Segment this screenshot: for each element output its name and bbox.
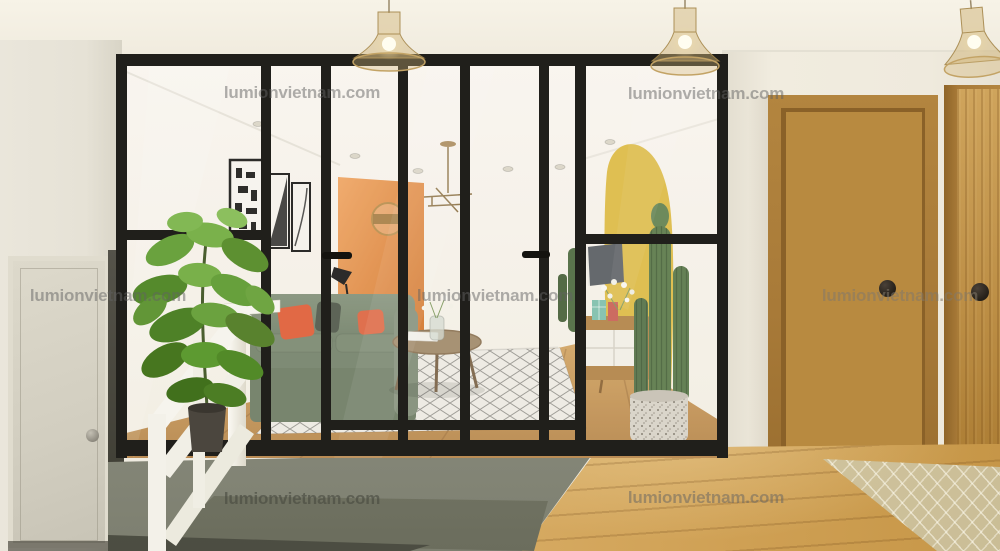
partition-post: [717, 54, 728, 458]
watermark: lumionvietnam.com: [628, 488, 784, 508]
watermark: lumionvietnam.com: [30, 286, 186, 306]
sliding-door-stile: [539, 64, 549, 456]
lamp-shade: [940, 5, 1000, 64]
door-pull-handle: [322, 252, 352, 259]
partition-post: [575, 62, 586, 456]
sliding-door-stile: [321, 64, 331, 456]
lamp-rim: [651, 57, 719, 75]
door-bottom-rail: [321, 420, 586, 430]
watermark: lumionvietnam.com: [822, 286, 978, 306]
partition-mid-rail: [575, 234, 728, 244]
scene-art: [0, 0, 1000, 551]
watermark: lumionvietnam.com: [224, 83, 380, 103]
door-pull-handle: [522, 251, 550, 258]
pendant-lamp-2: [651, 0, 719, 75]
lamp-rim: [353, 53, 425, 71]
lamp-bulb: [678, 35, 692, 49]
railing-post: [148, 414, 166, 551]
watermark: lumionvietnam.com: [628, 84, 784, 104]
plant-pot: [188, 403, 226, 452]
lamp-shade: [652, 8, 719, 61]
lamp-shade: [354, 12, 424, 58]
pendant-lamp-1: [353, 0, 425, 71]
watermark: lumionvietnam.com: [417, 286, 573, 306]
watermark: lumionvietnam.com: [224, 489, 380, 509]
partition-post: [116, 54, 127, 458]
sliding-door-stile: [398, 64, 408, 454]
lamp-bulb: [382, 37, 396, 51]
sliding-door-stile: [460, 64, 470, 456]
interior-render-image: lumionvietnam.com lumionvietnam.com lumi…: [0, 0, 1000, 551]
pendant-lamp-3: [939, 0, 1000, 80]
